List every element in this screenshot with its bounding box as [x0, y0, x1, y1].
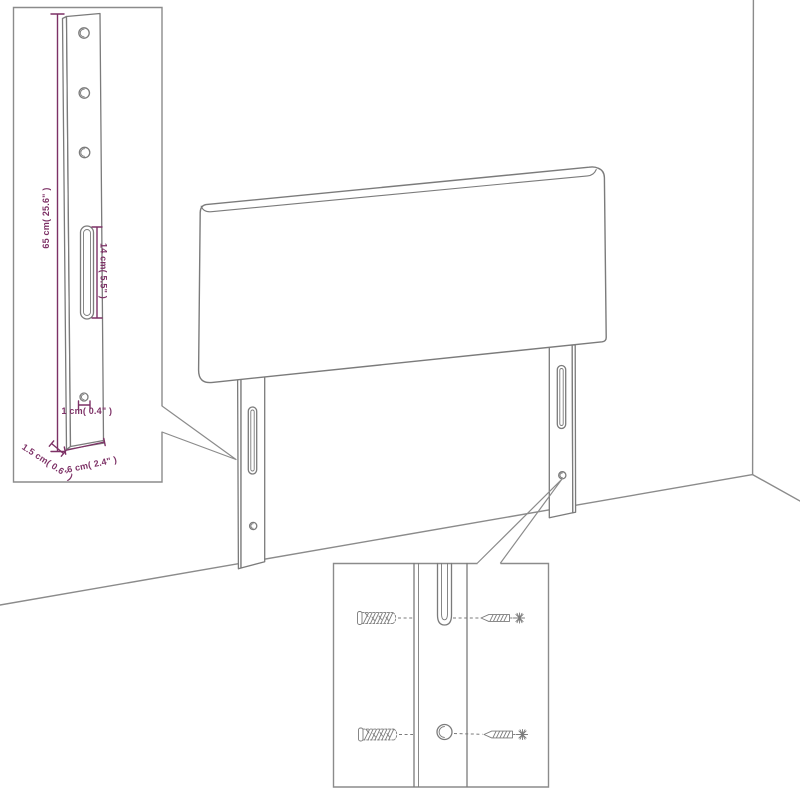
top-screw [481, 613, 525, 623]
hole-dimension-label: 1 cm( 0.4" ) [62, 406, 113, 416]
diagram-canvas: 65 cm( 25.6" ) 14 cm( 5.5" ) 1 cm( 0.4" … [0, 0, 800, 800]
height-dimension-line [51, 14, 64, 452]
floor-line-right [753, 475, 800, 501]
hardware-inset-leg [414, 564, 467, 787]
hardware-inset [334, 564, 549, 788]
slot-dimension-label: 14 cm( 5.5" ) [99, 243, 109, 299]
bottom-screw [484, 729, 528, 739]
hardware-leg-hole-shadow [439, 727, 444, 738]
floor-line-left [0, 475, 753, 605]
bottom-wall-plug [359, 728, 397, 741]
right-leg-side-face [572, 345, 575, 513]
headboard-panel [199, 167, 607, 383]
height-dimension-label: 65 cm( 25.6" ) [41, 187, 51, 248]
hardware-inset-callout [478, 479, 562, 563]
dimension-inset-callout [162, 406, 236, 460]
top-wall-plug [358, 612, 396, 625]
headboard-dimension-diagram: 65 cm( 25.6" ) 14 cm( 5.5" ) 1 cm( 0.4" … [0, 0, 800, 800]
callout-lines [162, 406, 562, 563]
hardware-leg-slot [438, 564, 452, 626]
headboard-left-leg [238, 376, 265, 569]
bottom-screw-alignment-dashes [454, 734, 483, 735]
hardware-inset-box [334, 564, 549, 788]
width-dimension-label: 6 cm( 2.4" ) [66, 454, 118, 474]
hardware-leg-slot-inner [442, 564, 448, 620]
left-leg-front-face [241, 376, 265, 568]
wall-corner-line [753, 0, 754, 475]
inset-leg [63, 14, 105, 450]
dimension-inset: 65 cm( 25.6" ) 14 cm( 5.5" ) 1 cm( 0.4" … [14, 8, 163, 483]
headboard-outline [199, 167, 607, 383]
